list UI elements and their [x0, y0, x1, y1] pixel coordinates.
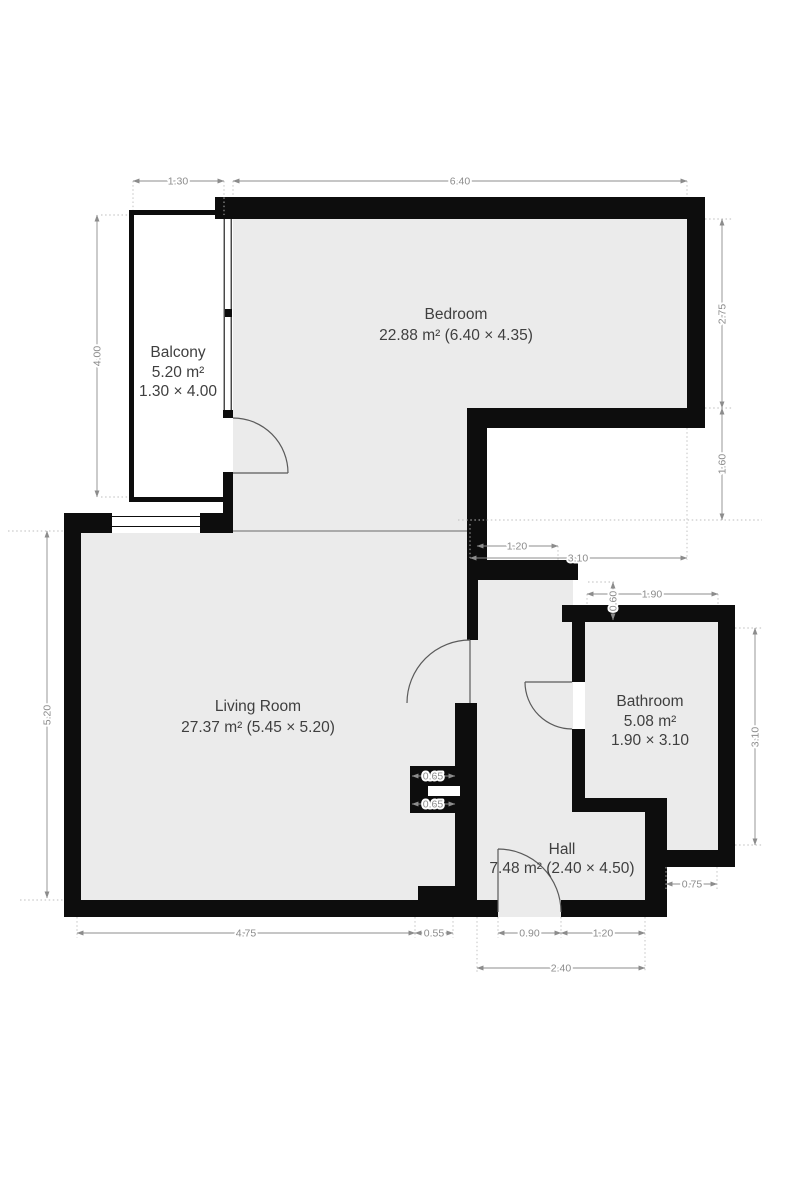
dim-bathroom-bottom: 0.75: [682, 879, 703, 891]
balcony-area: 5.20 m²: [152, 364, 205, 381]
dim-living-height: 5.20: [42, 705, 54, 726]
bathroom-dims: 1.90 × 3.10: [611, 732, 689, 749]
dim-living-width: 4.75: [236, 928, 257, 940]
dim-hall-top-width: 1.20: [507, 541, 528, 553]
bathroom-area: 5.08 m²: [624, 713, 677, 730]
dim-entry-width: 0.90: [519, 928, 540, 940]
wall-balcony-top: [129, 210, 217, 215]
bedroom-details: 22.88 m² (6.40 × 4.35): [379, 327, 533, 344]
dim-balcony-height: 4.00: [92, 346, 104, 367]
dim-bathroom-height: 3.10: [750, 727, 762, 748]
wall-bathroom-right: [718, 605, 735, 867]
bedroom-floor: [233, 215, 687, 531]
balcony-name: Balcony: [150, 344, 205, 361]
balcony-dims: 1.30 × 4.00: [139, 383, 217, 400]
living-room-window: [112, 513, 200, 533]
wall-living-bottom: [64, 900, 457, 917]
window-mullion: [225, 309, 232, 317]
wall-balcony-bottom: [129, 497, 233, 502]
dim-bathroom-width: 1.90: [642, 589, 663, 601]
hall-name: Hall: [549, 841, 576, 858]
dim-bathroom-top-gap: 0.60: [608, 591, 620, 612]
bedroom-name: Bedroom: [425, 306, 488, 323]
living-room-floor: [80, 525, 470, 905]
wall-bedroom-top: [215, 197, 705, 219]
dim-bedroom-width: 6.40: [450, 176, 471, 188]
wall-balcony-left: [129, 210, 134, 502]
balcony-bedroom-window: [223, 219, 233, 410]
wall-living-bottom-step: [418, 886, 457, 900]
wall-bathroom-left-lower: [572, 729, 585, 805]
wall-divider-upper-stub: [467, 580, 478, 640]
wall-bathroom-step: [572, 798, 667, 812]
dim-niche-top: 0.65: [423, 771, 444, 783]
dim-right-gap: 1.60: [717, 454, 729, 475]
wall-bathroom-left-upper: [572, 620, 585, 682]
wall-bathroom-bottom: [667, 850, 735, 867]
living-room-details: 27.37 m² (5.45 × 5.20): [181, 719, 335, 736]
wall-living-left: [64, 513, 81, 917]
dim-bedroom-right-height: 2.75: [717, 304, 729, 325]
living-room-name: Living Room: [215, 698, 301, 715]
hall-details: 7.48 m² (2.40 × 4.50): [489, 860, 634, 877]
dim-balcony-width: 1.30: [168, 176, 189, 188]
dim-hall-bottom-right: 1.20: [593, 928, 614, 940]
entry-threshold: [498, 900, 561, 917]
dim-hall-width: 2.40: [551, 963, 572, 975]
dim-living-step: 0.55: [424, 928, 445, 940]
floor-plan-page: 1.30 6.40 4.00 5.20 2.75 1.60 1.20 3.10 …: [0, 0, 800, 1200]
wall-hall-right-lower: [645, 812, 667, 917]
dim-niche-bottom: 0.65: [423, 799, 444, 811]
wall-window-cap: [223, 410, 233, 418]
wall-bedroom-right: [687, 197, 705, 428]
dim-notch-width: 3.10: [568, 553, 589, 565]
wall-living-topright: [200, 513, 233, 533]
wall-hall-bottom-left: [477, 900, 498, 917]
wall-divider-lower: [455, 703, 477, 917]
wall-bathroom-top: [562, 605, 735, 622]
wall-hall-top: [467, 560, 578, 580]
wall-bedroom-bottom: [467, 408, 705, 428]
niche-slot: [428, 786, 460, 796]
bathroom-name: Bathroom: [616, 693, 683, 710]
floor-plan-canvas: 1.30 6.40 4.00 5.20 2.75 1.60 1.20 3.10 …: [0, 0, 800, 1200]
